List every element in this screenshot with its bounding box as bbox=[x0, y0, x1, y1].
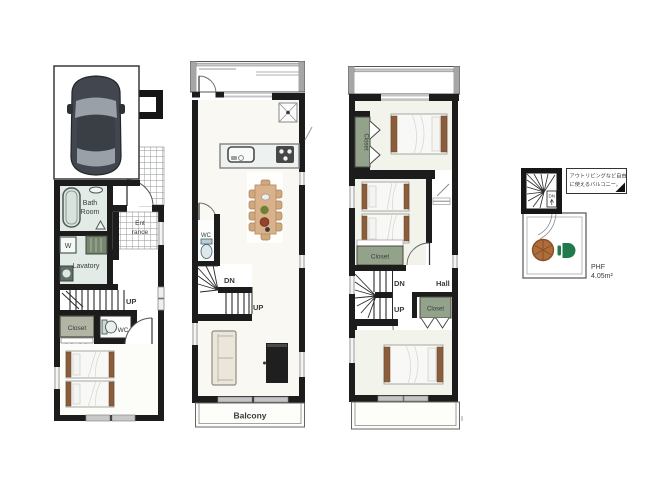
svg-text:DN: DN bbox=[549, 194, 556, 199]
svg-text:DN: DN bbox=[224, 276, 235, 285]
svg-text:Room: Room bbox=[81, 209, 100, 216]
svg-text:UP: UP bbox=[394, 305, 404, 314]
svg-text:Lavatory: Lavatory bbox=[73, 263, 100, 270]
svg-text:UP: UP bbox=[253, 303, 263, 312]
svg-text:Hall: Hall bbox=[436, 279, 450, 288]
svg-text:Closet: Closet bbox=[68, 325, 87, 332]
svg-text:W: W bbox=[65, 243, 72, 250]
svg-text:Balcony: Balcony bbox=[233, 411, 266, 421]
svg-text:WC: WC bbox=[201, 233, 212, 239]
svg-text:PHF: PHF bbox=[591, 264, 605, 271]
svg-text:4.05m²: 4.05m² bbox=[591, 273, 613, 280]
svg-text:WC: WC bbox=[118, 327, 129, 334]
svg-text:UP: UP bbox=[126, 297, 136, 306]
svg-text:Bath: Bath bbox=[83, 200, 98, 207]
svg-text:Ent: Ent bbox=[135, 220, 145, 227]
svg-text:rance: rance bbox=[132, 229, 149, 236]
svg-text:Closet: Closet bbox=[363, 133, 369, 150]
svg-text:Closet: Closet bbox=[427, 307, 444, 313]
svg-text:に使えるバルコニー。: に使えるバルコニー。 bbox=[570, 180, 622, 188]
svg-text:Closet: Closet bbox=[371, 254, 390, 261]
svg-text:DN: DN bbox=[394, 279, 405, 288]
svg-text:アウトリビングなど自由: アウトリビングなど自由 bbox=[570, 172, 627, 180]
